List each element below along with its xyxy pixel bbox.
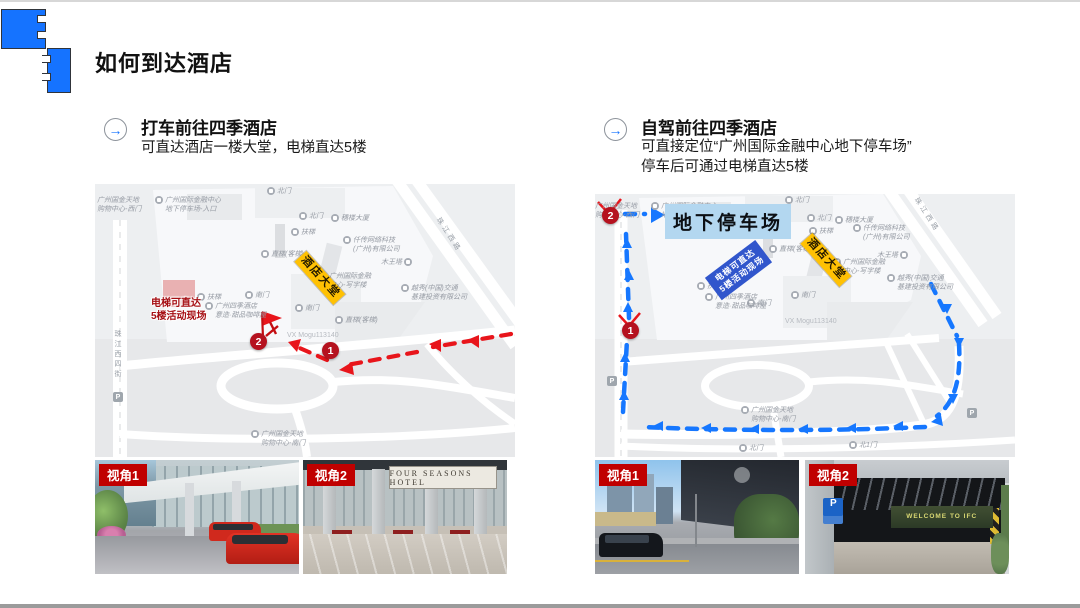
drive-photo-view2: WELCOME TO IFC P 视角2	[805, 460, 1009, 574]
map-pin-icon	[741, 406, 749, 414]
map-pin-icon	[697, 282, 705, 290]
map-pin-icon	[900, 251, 908, 259]
drive-section-arrow-icon: →	[604, 118, 627, 141]
parking-p-icon: P	[607, 376, 617, 386]
view-badge: 视角2	[809, 464, 857, 486]
map-label: 广州国金天地 购物中心-西门	[97, 196, 141, 214]
map-pin-icon	[267, 187, 275, 195]
drive-photo-view1: 视角1	[595, 460, 799, 574]
map-pin-icon	[331, 214, 339, 222]
hotel-sign: FOUR SEASONS HOTEL	[389, 466, 497, 490]
parking-p-icon: P	[113, 392, 123, 402]
welcome-sign: WELCOME TO IFC	[891, 506, 993, 529]
watermark: VX Mogu113140	[287, 332, 339, 339]
map-pin-icon	[335, 316, 343, 324]
map-pin-icon	[291, 228, 299, 236]
map-label: 木王塔	[381, 258, 412, 267]
drive-section-heading: 自驾前往四季酒店	[641, 114, 777, 139]
map-label: 北门	[739, 444, 763, 453]
watermark: VX Mogu113140	[785, 318, 837, 325]
page-title: 如何到达酒店	[95, 46, 233, 78]
map-pin-icon	[155, 196, 163, 204]
map-label: 广州国金天地 购物中心-南门	[741, 406, 795, 424]
parking-p-icon: P	[967, 408, 977, 418]
view-badge: 视角1	[599, 464, 647, 486]
taxi-route-map: 广州国金天地 购物中心-西门 广州国际金融中心 地下停车场-入口 北门 北门 穗…	[95, 184, 515, 457]
taxi-photo-view2: FOUR SEASONS HOTEL 视角2	[303, 460, 507, 574]
route-marker-2: 2	[250, 333, 267, 350]
slide-canvas: 如何到达酒店 → 打车前往四季酒店 可直达酒店一楼大堂，电梯直达5楼	[0, 0, 1080, 608]
map-label: 广州国金天地 购物中心-南门	[251, 430, 305, 448]
map-label: 北门	[807, 214, 831, 223]
map-pin-icon	[651, 202, 659, 210]
map-label: 广州四季酒店 意造·甜品咖啡屋	[705, 293, 766, 311]
map-label: 越秀(中国)交通 基建投资有限公司	[401, 284, 467, 302]
shrub	[991, 533, 1009, 574]
slide-bottom-edge	[0, 604, 1080, 608]
map-label: 南门	[295, 304, 319, 313]
map-pin-icon	[835, 216, 843, 224]
map-pin-icon	[739, 444, 747, 452]
map-label: 仟传网络科技 (广州)有限公司	[853, 224, 910, 242]
taxi-section-heading: 打车前往四季酒店	[141, 114, 277, 139]
map-pin-icon	[343, 236, 351, 244]
map-label: 北门	[299, 212, 323, 221]
elevator-note: 电梯可直达 5楼活动现场	[151, 297, 207, 323]
drive-route-map: 广州国金天地 购物中心-西门 广州国际金融中心 地下停车场-入口 北门 北门 穗…	[595, 194, 1015, 457]
map-pin-icon	[887, 274, 895, 282]
map-pin-icon	[853, 224, 861, 232]
view-badge: 视角1	[99, 464, 147, 486]
parking-sign-icon: P	[823, 498, 843, 524]
map-label: 广州四季酒店 意造·甜品咖啡屋	[205, 302, 266, 320]
map-pin-icon	[849, 441, 857, 449]
map-label: 穗楼大厦	[331, 214, 369, 223]
map-label: 南门	[245, 291, 269, 300]
map-label: 南门	[791, 291, 815, 300]
drive-map-roads-and-route	[595, 194, 1015, 457]
street-name-vertical: 珠江西四街	[112, 330, 122, 380]
map-pin-icon	[807, 214, 815, 222]
map-pin-icon	[785, 196, 793, 204]
map-pin-icon	[251, 430, 259, 438]
map-label: 北1门	[849, 441, 877, 450]
taxi-photo-view1: 视角1	[95, 460, 299, 574]
route-marker-2: 2	[602, 207, 619, 224]
map-pin-icon	[769, 245, 777, 253]
drive-section-subheading-1: 可直接定位“广州国际金融中心地下停车场”	[641, 137, 912, 157]
route-marker-1: 1	[322, 342, 339, 359]
map-label: 扶梯	[291, 228, 315, 237]
map-pin-icon	[245, 291, 253, 299]
map-pin-icon	[299, 212, 307, 220]
map-pin-icon	[404, 258, 412, 266]
view-badge: 视角2	[307, 464, 355, 486]
map-label: 直梯(客梯)	[335, 316, 378, 325]
taxi-section-subheading: 可直达酒店一楼大堂，电梯直达5楼	[141, 138, 367, 158]
drive-section-subheading-2: 停车后可通过电梯直达5楼	[641, 157, 809, 177]
map-label: 仟传网络科技 (广州)有限公司	[343, 236, 400, 254]
taxi-section-arrow-icon: →	[104, 118, 127, 141]
map-pin-icon	[401, 284, 409, 292]
parking-label: 地下停车场	[665, 204, 791, 239]
map-label: 广州国际金融中心 地下停车场-入口	[155, 196, 221, 214]
map-pin-icon	[705, 293, 713, 301]
map-label: 越秀(中国)交通 基建投资有限公司	[887, 274, 953, 292]
map-pin-icon	[295, 304, 303, 312]
map-pin-icon	[791, 291, 799, 299]
map-label: 北门	[267, 187, 291, 196]
route-marker-1: 1	[622, 322, 639, 339]
map-pin-icon	[261, 250, 269, 258]
map-label: 木王塔	[877, 251, 908, 260]
